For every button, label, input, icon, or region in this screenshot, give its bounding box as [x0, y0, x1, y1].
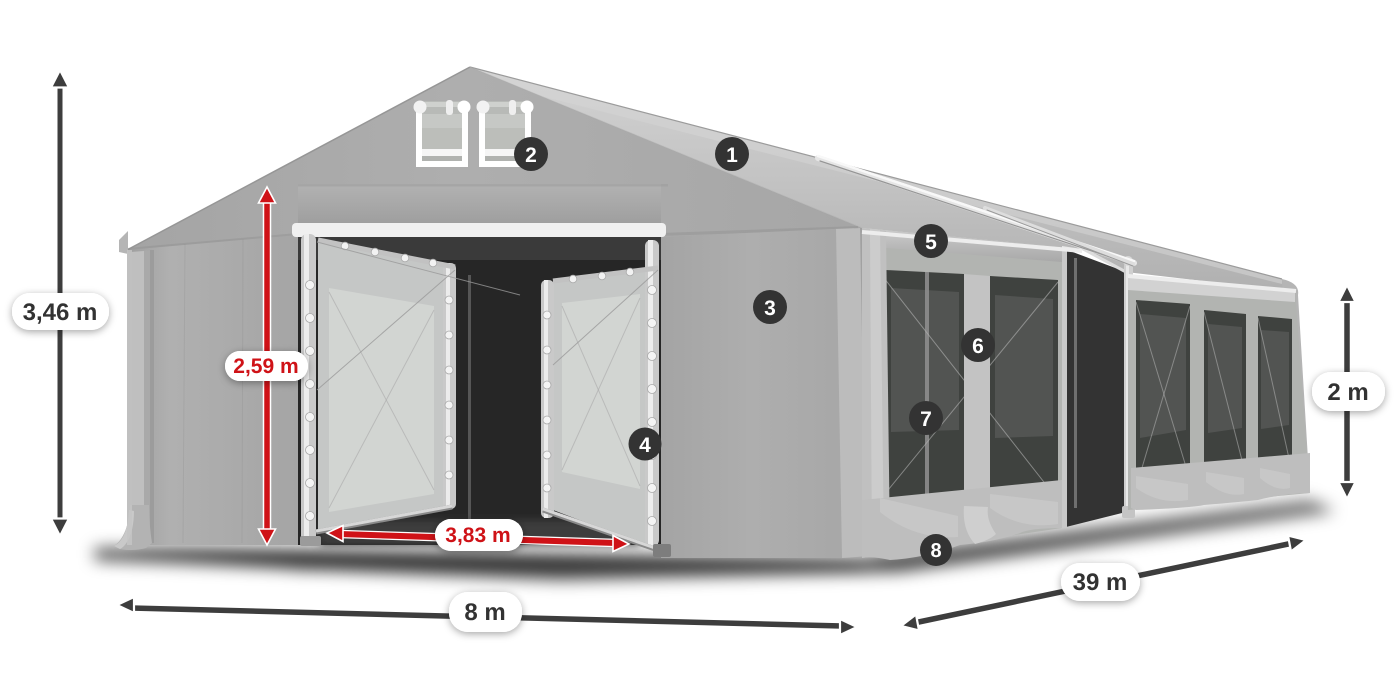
svg-text:8: 8 — [930, 540, 941, 562]
svg-text:3: 3 — [764, 297, 776, 320]
svg-text:3,83 m: 3,83 m — [445, 524, 510, 547]
svg-text:3,46 m: 3,46 m — [23, 299, 98, 326]
svg-text:4: 4 — [639, 434, 651, 457]
svg-text:7: 7 — [920, 408, 932, 431]
svg-text:6: 6 — [972, 335, 984, 358]
svg-text:1: 1 — [726, 144, 738, 167]
svg-text:39 m: 39 m — [1073, 569, 1128, 596]
svg-text:8 m: 8 m — [464, 599, 505, 626]
svg-text:2 m: 2 m — [1327, 379, 1368, 406]
svg-text:2,59 m: 2,59 m — [233, 355, 298, 378]
svg-text:5: 5 — [925, 231, 937, 254]
svg-text:2: 2 — [525, 144, 537, 167]
